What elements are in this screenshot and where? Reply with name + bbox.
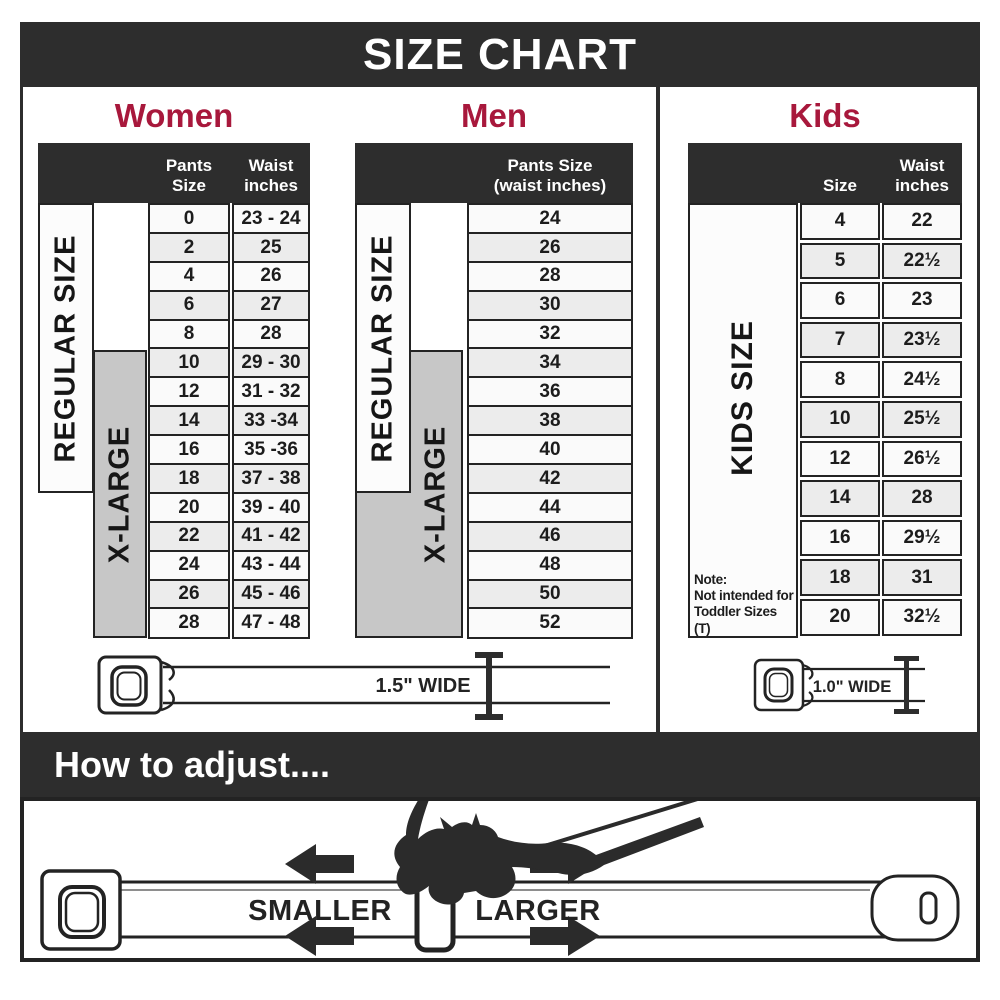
- table-row: 627: [148, 290, 310, 321]
- table-row: 1025½: [800, 401, 962, 438]
- table-cell: 36: [467, 376, 633, 407]
- kids-col-waist: Waist inches: [882, 143, 962, 203]
- table-row: 1231 - 32: [148, 376, 310, 407]
- table-cell: 45 - 46: [232, 579, 310, 610]
- men-xlarge-label: X-LARGE: [409, 350, 463, 638]
- table-row: 46: [467, 521, 633, 552]
- kids-title: Kids: [688, 94, 962, 138]
- table-row: 1433 -34: [148, 405, 310, 436]
- how-to-adjust-header: How to adjust....: [20, 732, 980, 797]
- table-cell: 23: [882, 282, 962, 319]
- table-cell: 29½: [882, 520, 962, 557]
- table-cell: 30: [467, 290, 633, 321]
- panel-divider: [656, 87, 660, 732]
- table-row: 828: [148, 319, 310, 350]
- table-cell: 32: [467, 319, 633, 350]
- table-cell: 8: [148, 319, 230, 350]
- table-cell: 16: [148, 434, 230, 465]
- table-cell: 28: [467, 261, 633, 292]
- table-cell: 24: [148, 550, 230, 581]
- table-cell: 6: [148, 290, 230, 321]
- table-cell: 26½: [882, 441, 962, 478]
- table-cell: 47 - 48: [232, 607, 310, 638]
- women-xlarge-label: X-LARGE: [93, 350, 147, 638]
- table-row: 2645 - 46: [148, 579, 310, 610]
- table-cell: 16: [800, 520, 880, 557]
- table-cell: 31: [882, 559, 962, 596]
- table-cell: 0: [148, 203, 230, 234]
- table-cell: 43 - 44: [232, 550, 310, 581]
- table-row: 225: [148, 232, 310, 263]
- table-row: 1029 - 30: [148, 347, 310, 378]
- table-row: 723½: [800, 322, 962, 359]
- table-cell: 8: [800, 361, 880, 398]
- table-row: 40: [467, 434, 633, 465]
- women-title: Women: [38, 94, 310, 138]
- table-cell: 48: [467, 550, 633, 581]
- page-title: SIZE CHART: [20, 22, 980, 87]
- table-cell: 40: [467, 434, 633, 465]
- table-row: 28: [467, 261, 633, 292]
- table-row: 2032½: [800, 599, 962, 636]
- table-row: 522½: [800, 243, 962, 280]
- table-cell: 28: [882, 480, 962, 517]
- table-cell: 22: [148, 521, 230, 552]
- table-row: 1831: [800, 559, 962, 596]
- kids-belt-width-label: 1.0" WIDE: [813, 678, 891, 696]
- table-row: 32: [467, 319, 633, 350]
- table-row: 1629½: [800, 520, 962, 557]
- table-cell: 38: [467, 405, 633, 436]
- table-row: 50: [467, 579, 633, 610]
- table-row: 24: [467, 203, 633, 234]
- table-cell: 5: [800, 243, 880, 280]
- table-row: 1428: [800, 480, 962, 517]
- table-cell: 23 - 24: [232, 203, 310, 234]
- table-cell: 41 - 42: [232, 521, 310, 552]
- women-regular-label: REGULAR SIZE: [38, 203, 94, 493]
- seatbelt-buckle-icon: [755, 660, 812, 710]
- table-cell: 52: [467, 607, 633, 638]
- men-regular-label: REGULAR SIZE: [355, 203, 411, 493]
- larger-label: LARGER: [475, 895, 600, 927]
- arrow-left-icon: [285, 844, 354, 884]
- kids-belt-diagram: 1.0" WIDE: [735, 648, 947, 724]
- table-cell: 24: [467, 203, 633, 234]
- table-cell: 42: [467, 463, 633, 494]
- table-cell: 25: [232, 232, 310, 263]
- adjust-illustration-box: SMALLER LARGER: [20, 797, 980, 962]
- women-col-pants-size: Pants Size: [148, 143, 230, 203]
- table-cell: 2: [148, 232, 230, 263]
- table-cell: 7: [800, 322, 880, 359]
- table-cell: 34: [467, 347, 633, 378]
- table-row: 30: [467, 290, 633, 321]
- table-cell: 18: [800, 559, 880, 596]
- table-cell: 26: [467, 232, 633, 263]
- table-cell: 46: [467, 521, 633, 552]
- table-cell: 10: [800, 401, 880, 438]
- seatbelt-buckle-icon: [42, 871, 120, 949]
- table-cell: 28: [148, 607, 230, 638]
- smaller-label: SMALLER: [248, 895, 392, 927]
- table-cell: 4: [148, 261, 230, 292]
- table-row: 26: [467, 232, 633, 263]
- table-cell: 35 -36: [232, 434, 310, 465]
- table-cell: 4: [800, 203, 880, 240]
- seatbelt-buckle-icon: [99, 657, 174, 713]
- table-row: 2241 - 42: [148, 521, 310, 552]
- table-row: 2039 - 40: [148, 492, 310, 523]
- size-chart-page: SIZE CHART Women Men Kids Pants Size Wai…: [0, 0, 1000, 1000]
- table-row: 48: [467, 550, 633, 581]
- table-row: 426: [148, 261, 310, 292]
- table-cell: 12: [800, 441, 880, 478]
- table-row: 1226½: [800, 441, 962, 478]
- table-row: 1635 -36: [148, 434, 310, 465]
- table-row: 824½: [800, 361, 962, 398]
- table-cell: 23½: [882, 322, 962, 359]
- table-cell: 6: [800, 282, 880, 319]
- table-cell: 14: [800, 480, 880, 517]
- table-cell: 12: [148, 376, 230, 407]
- kids-col-size: Size: [800, 143, 880, 203]
- table-cell: 39 - 40: [232, 492, 310, 523]
- table-row: 42: [467, 463, 633, 494]
- men-title: Men: [355, 94, 633, 138]
- table-cell: 10: [148, 347, 230, 378]
- adjust-illustration: SMALLER LARGER: [24, 801, 976, 958]
- table-row: 422: [800, 203, 962, 240]
- table-cell: 44: [467, 492, 633, 523]
- table-row: 023 - 24: [148, 203, 310, 234]
- table-row: 2443 - 44: [148, 550, 310, 581]
- table-cell: 26: [148, 579, 230, 610]
- table-row: 36: [467, 376, 633, 407]
- table-cell: 18: [148, 463, 230, 494]
- table-cell: 37 - 38: [232, 463, 310, 494]
- adult-belt-width-label: 1.5" WIDE: [375, 675, 470, 697]
- table-cell: 28: [232, 319, 310, 350]
- adult-belt-diagram: 1.5" WIDE: [85, 648, 625, 724]
- table-cell: 26: [232, 261, 310, 292]
- table-cell: 14: [148, 405, 230, 436]
- table-cell: 33 -34: [232, 405, 310, 436]
- table-cell: 22: [882, 203, 962, 240]
- table-cell: 22½: [882, 243, 962, 280]
- women-col-waist: Waist inches: [232, 143, 310, 203]
- table-cell: 20: [800, 599, 880, 636]
- kids-note: Note: Not intended for Toddler Sizes (T): [694, 572, 796, 637]
- table-row: 1837 - 38: [148, 463, 310, 494]
- men-col-pants-size: Pants Size (waist inches): [467, 143, 633, 203]
- table-cell: 31 - 32: [232, 376, 310, 407]
- belt-tip-icon: [872, 876, 958, 940]
- table-row: 38: [467, 405, 633, 436]
- men-size-table: 242628303234363840424446485052: [467, 203, 633, 639]
- table-cell: 50: [467, 579, 633, 610]
- table-cell: 24½: [882, 361, 962, 398]
- table-cell: 29 - 30: [232, 347, 310, 378]
- table-row: 34: [467, 347, 633, 378]
- table-row: 623: [800, 282, 962, 319]
- kids-size-label: KIDS SIZE: [688, 203, 798, 593]
- table-cell: 20: [148, 492, 230, 523]
- kids-size-table: 422522½623723½824½1025½1226½14281629½183…: [800, 203, 962, 636]
- table-row: 2847 - 48: [148, 607, 310, 638]
- table-cell: 27: [232, 290, 310, 321]
- table-row: 44: [467, 492, 633, 523]
- table-cell: 25½: [882, 401, 962, 438]
- table-cell: 32½: [882, 599, 962, 636]
- women-size-table: 023 - 242254266278281029 - 301231 - 3214…: [148, 203, 310, 639]
- table-row: 52: [467, 607, 633, 638]
